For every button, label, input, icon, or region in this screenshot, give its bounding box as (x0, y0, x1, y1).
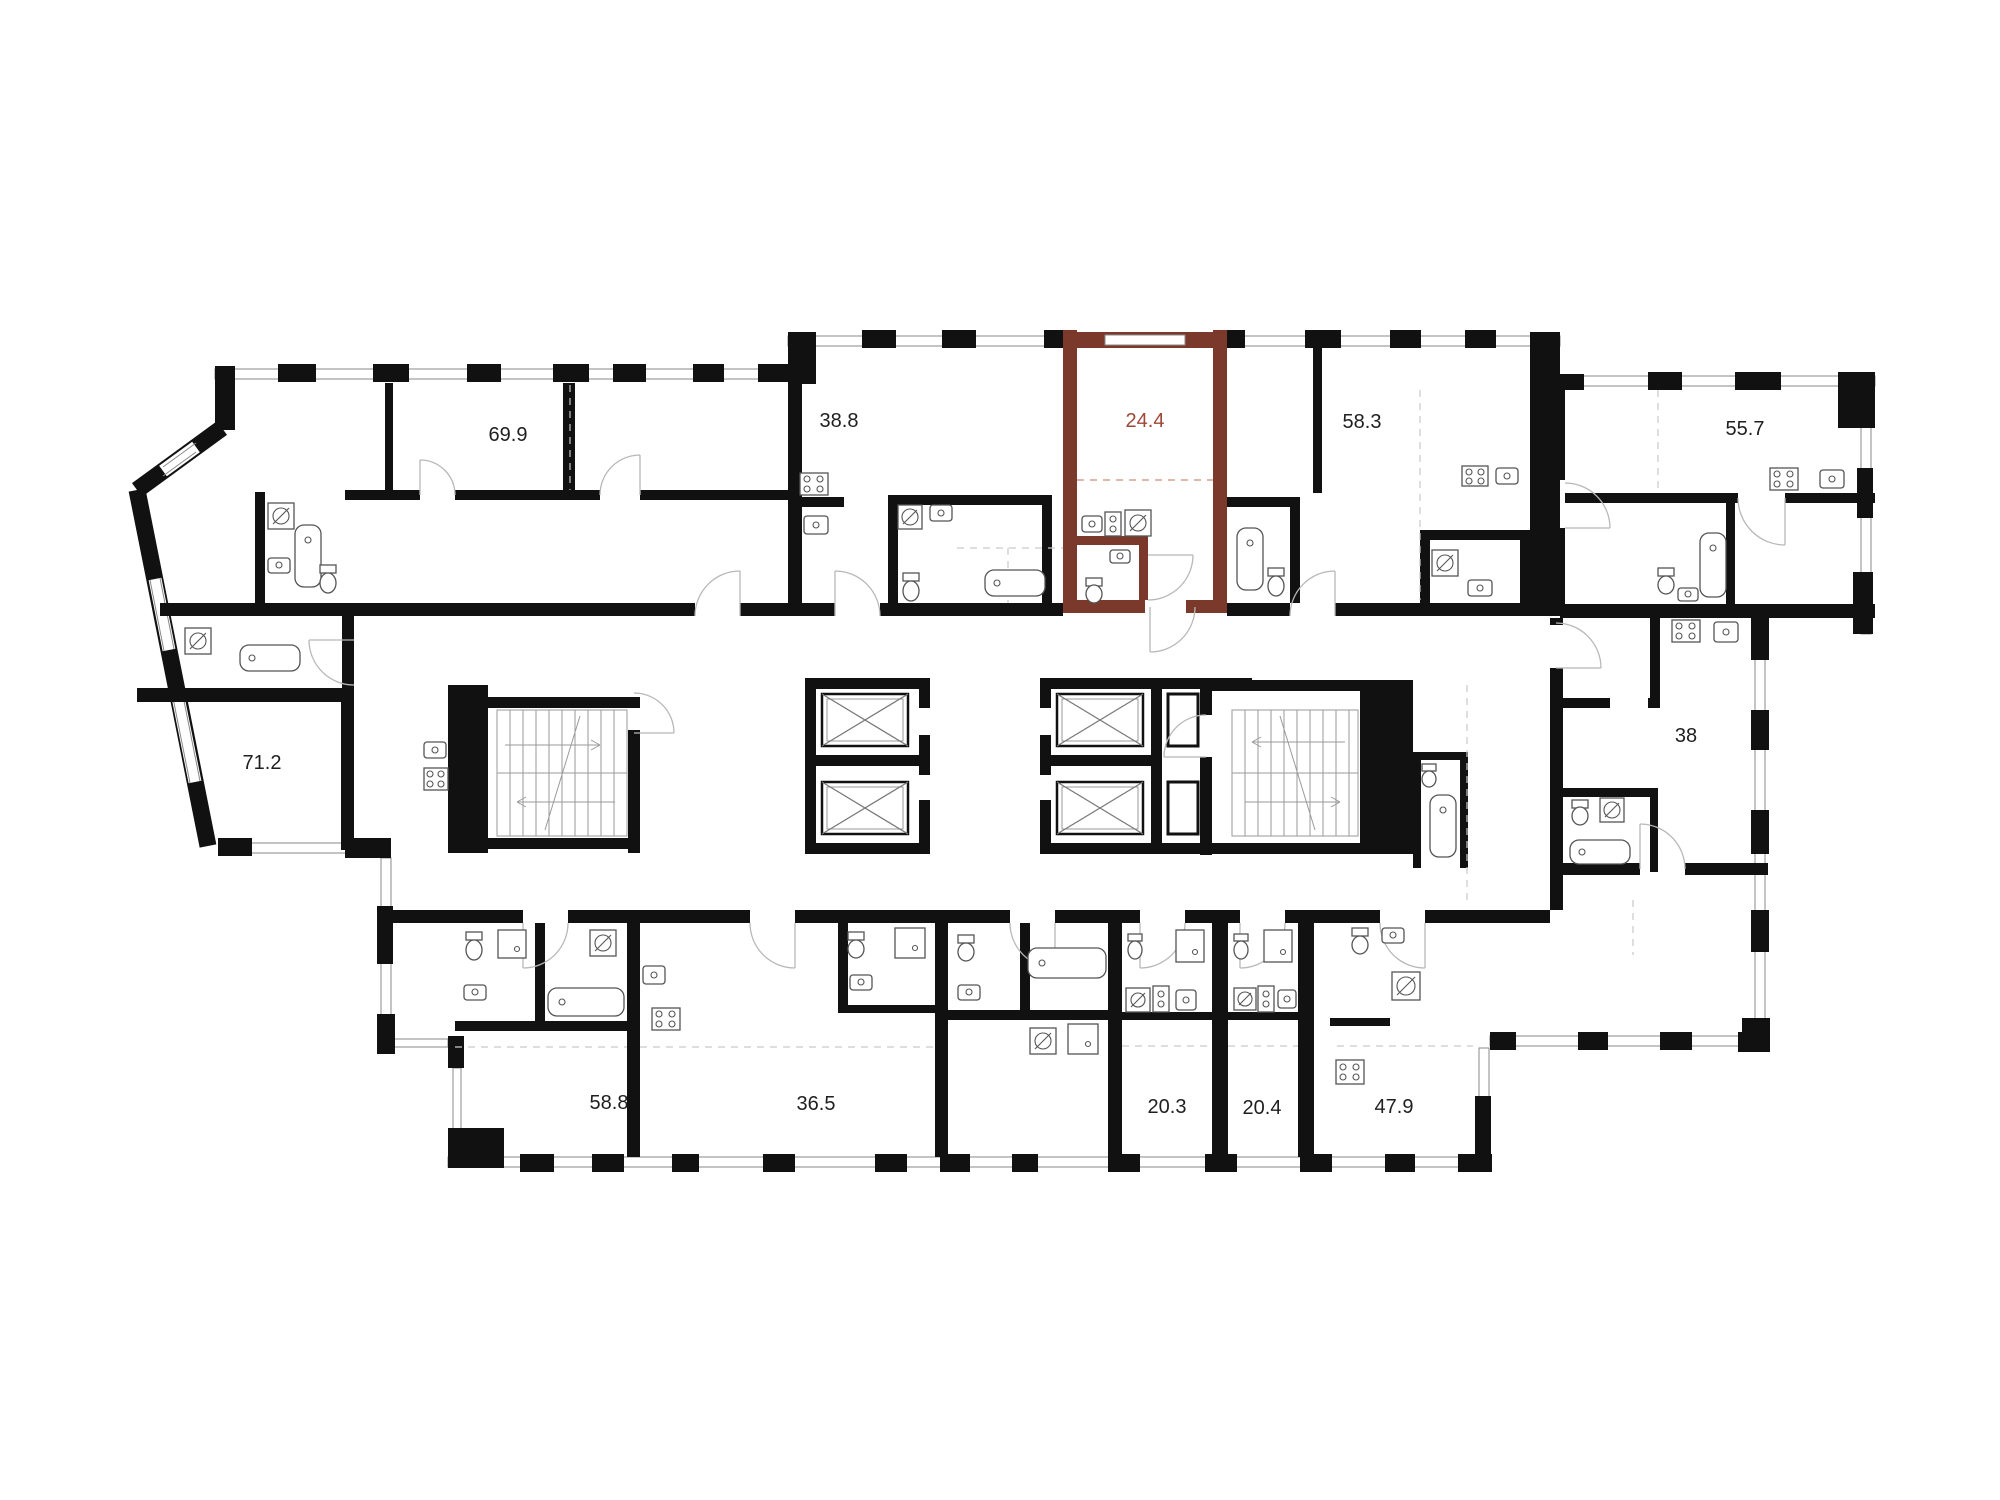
unit-label-71-2: 71.2 (243, 752, 282, 774)
sink-icon (1714, 622, 1738, 642)
unit-region-20-3[interactable] (1124, 968, 1210, 1153)
unit-label-20-3: 20.3 (1148, 1096, 1187, 1118)
shower-icon (498, 930, 526, 958)
unit-region-69-9[interactable] (232, 382, 782, 597)
staircase-left (448, 685, 640, 853)
sink-icon (424, 742, 446, 758)
toilet-icon (848, 932, 864, 958)
unit-label-38: 38 (1675, 725, 1697, 747)
sink-icon (1110, 550, 1130, 563)
elevator-core-right (1040, 678, 1252, 854)
bathtub-icon (1430, 795, 1456, 857)
toilet-icon (1352, 928, 1368, 954)
unit-label-36-5: 36.5 (797, 1093, 836, 1115)
sink-icon (958, 985, 980, 1000)
unit-region-47-9[interactable] (1332, 968, 1472, 1153)
unit-label-38-8: 38.8 (820, 410, 859, 432)
floor-plan-svg: 69.9 38.8 24.4 58.3 55.7 71.2 38 58.8 36… (0, 0, 2000, 1500)
bathtub-icon (1028, 948, 1106, 978)
stove-icon (424, 768, 448, 790)
service-shaft (1168, 694, 1198, 746)
unit-label-58-3: 58.3 (1343, 411, 1382, 433)
unit-label-69-9: 69.9 (489, 424, 528, 446)
service-shaft (1168, 782, 1198, 834)
stove-icon (1672, 620, 1700, 642)
shower-icon (895, 928, 925, 958)
unit-region-20-4[interactable] (1230, 968, 1296, 1153)
unit-label-58-8: 58.8 (590, 1092, 629, 1114)
bathtub-icon (240, 645, 300, 671)
shower-icon (1068, 1024, 1098, 1054)
stair-treads (1232, 710, 1358, 836)
washer-icon (1125, 510, 1151, 536)
unit-label-55-7: 55.7 (1726, 418, 1765, 440)
unit-label-47-9: 47.9 (1375, 1096, 1414, 1118)
unit-region-38[interactable] (1565, 712, 1748, 860)
unit-region-58-3[interactable] (1227, 348, 1527, 598)
unit-label-20-4: 20.4 (1243, 1097, 1282, 1119)
elevator-shaft (822, 694, 908, 746)
stove-icon (1105, 512, 1121, 536)
toilet-icon (1422, 764, 1436, 787)
shower-icon (1264, 930, 1292, 962)
unit-region-38-8[interactable] (802, 348, 1060, 598)
unit-region-55-7[interactable] (1565, 390, 1855, 600)
sink-icon (1382, 928, 1404, 943)
washer-icon (590, 930, 616, 956)
floor-plan-page: 69.9 38.8 24.4 58.3 55.7 71.2 38 58.8 36… (0, 0, 2000, 1500)
unit-region-36-5[interactable] (642, 968, 932, 1153)
toilet-icon (1128, 934, 1142, 959)
toilet-icon (1086, 578, 1102, 603)
staircase-right (1200, 680, 1413, 855)
toilet-icon (466, 932, 482, 960)
sink-icon (1082, 516, 1102, 532)
toilet-icon (958, 935, 974, 961)
elevator-shaft (1057, 694, 1143, 746)
unit-region-58-8[interactable] (455, 968, 625, 1153)
washer-icon (185, 628, 211, 654)
elevator-shaft (1057, 782, 1143, 834)
elevator-core-left (805, 678, 930, 854)
toilet-icon (1234, 934, 1248, 959)
washer-icon (1030, 1028, 1056, 1054)
unit-label-24-4: 24.4 (1126, 410, 1165, 432)
elevator-shaft (822, 782, 908, 834)
stair-treads (497, 710, 627, 836)
shower-icon (1176, 930, 1204, 962)
